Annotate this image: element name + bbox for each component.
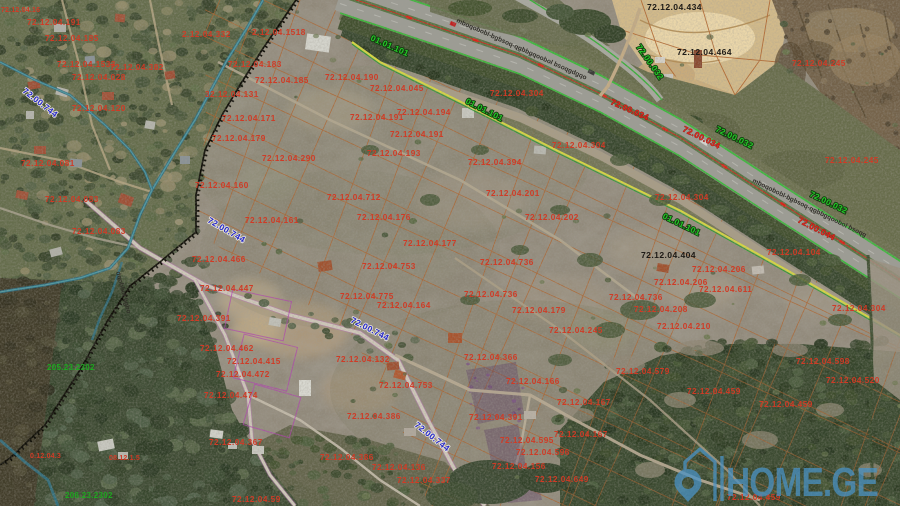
svg-text:72.12.04.156: 72.12.04.156: [492, 462, 546, 471]
svg-text:72.12.04.474: 72.12.04.474: [204, 391, 258, 400]
svg-text:72.12.04.464: 72.12.04.464: [677, 47, 732, 57]
svg-text:72.12.04.466: 72.12.04.466: [192, 255, 246, 264]
svg-text:72.12.04.194: 72.12.04.194: [397, 108, 451, 117]
svg-text:72.12.04.183: 72.12.04.183: [228, 60, 282, 69]
svg-text:72.12.04.337: 72.12.04.337: [397, 476, 451, 485]
svg-text:72.12.04.459: 72.12.04.459: [687, 387, 741, 396]
svg-text:72.12.04.404: 72.12.04.404: [641, 250, 696, 260]
svg-text:72.12.04.753: 72.12.04.753: [362, 262, 416, 271]
svg-text:72.12.04.167: 72.12.04.167: [554, 430, 608, 439]
svg-text:72.12.04.447: 72.12.04.447: [200, 284, 254, 293]
svg-text:72.12.04.712: 72.12.04.712: [327, 193, 381, 202]
svg-text:72.12.04.176: 72.12.04.176: [357, 213, 411, 222]
svg-text:72.12.04.1533: 72.12.04.1533: [57, 60, 116, 69]
svg-text:72.12.04.386: 72.12.04.386: [320, 453, 374, 462]
svg-text:72.12.04.472: 72.12.04.472: [216, 370, 270, 379]
svg-text:72.12.04.081: 72.12.04.081: [21, 159, 75, 168]
svg-text:72.12.04.167: 72.12.04.167: [557, 398, 611, 407]
svg-text:HOME.GE: HOME.GE: [726, 459, 878, 505]
svg-text:72.12.04.245: 72.12.04.245: [549, 326, 603, 335]
svg-text:72.12.04.083: 72.12.04.083: [72, 227, 126, 236]
svg-text:72.12.04.304: 72.12.04.304: [552, 141, 606, 150]
svg-text:72.12.04.104: 72.12.04.104: [767, 248, 821, 257]
svg-text:205.23.2302: 205.23.2302: [47, 363, 95, 372]
svg-text:72.12.04.171: 72.12.04.171: [222, 114, 276, 123]
svg-text:72.12.04.394: 72.12.04.394: [468, 158, 522, 167]
svg-text:72.12.04.595: 72.12.04.595: [500, 436, 554, 445]
svg-text:72.12.04.16: 72.12.04.16: [1, 7, 40, 14]
svg-text:72.12.04.201: 72.12.04.201: [486, 189, 540, 198]
svg-text:72.12.04.59: 72.12.04.59: [232, 495, 281, 504]
svg-text:72.12.04.202: 72.12.04.202: [525, 213, 579, 222]
svg-text:72.12.04.166: 72.12.04.166: [506, 377, 560, 386]
svg-text:72.12.04.753: 72.12.04.753: [379, 381, 433, 390]
svg-text:0.12.04.3: 0.12.04.3: [30, 453, 61, 460]
svg-text:72.12.04.367: 72.12.04.367: [209, 438, 263, 447]
svg-text:72.12.04.191: 72.12.04.191: [27, 18, 81, 27]
svg-text:72.12.04.191: 72.12.04.191: [390, 130, 444, 139]
svg-text:72.12.04.386: 72.12.04.386: [347, 412, 401, 421]
svg-text:72.12.04.161: 72.12.04.161: [245, 216, 299, 225]
svg-text:08.12.1.5: 08.12.1.5: [109, 455, 140, 462]
svg-text:72.12.04.462: 72.12.04.462: [200, 344, 254, 353]
svg-text:206.23.2302: 206.23.2302: [65, 491, 113, 500]
svg-text:72.12.04.160: 72.12.04.160: [195, 181, 249, 190]
svg-text:72.12.04.649: 72.12.04.649: [535, 475, 589, 484]
svg-text:72.12.04.190: 72.12.04.190: [325, 73, 379, 82]
svg-text:72.12.04.775: 72.12.04.775: [340, 292, 394, 301]
svg-text:72.12.04.208: 72.12.04.208: [634, 305, 688, 314]
svg-text:72.12.04.304: 72.12.04.304: [832, 304, 886, 313]
svg-text:72.12.04.045: 72.12.04.045: [370, 84, 424, 93]
svg-text:2.12.04.1518: 2.12.04.1518: [252, 28, 306, 37]
svg-text:72.12.04.304: 72.12.04.304: [655, 193, 709, 202]
svg-text:72.12.04.120: 72.12.04.120: [72, 104, 126, 113]
svg-text:72.12.04.164: 72.12.04.164: [377, 301, 431, 310]
svg-text:72.12.04.598: 72.12.04.598: [796, 357, 850, 366]
svg-text:72.12.04.304: 72.12.04.304: [490, 89, 544, 98]
svg-text:72.12.04.391: 72.12.04.391: [469, 413, 523, 422]
svg-text:72.12.04.415: 72.12.04.415: [227, 357, 281, 366]
svg-text:72.12.04.193: 72.12.04.193: [367, 149, 421, 158]
svg-text:72.12.04.136: 72.12.04.136: [372, 463, 426, 472]
svg-text:72.12.04.191: 72.12.04.191: [350, 113, 404, 122]
svg-text:72.12.04.520: 72.12.04.520: [826, 376, 880, 385]
svg-text:72.12.04.245: 72.12.04.245: [792, 59, 846, 68]
svg-text:72.12.04.434: 72.12.04.434: [647, 2, 702, 12]
svg-text:72.12.04.596: 72.12.04.596: [516, 448, 570, 457]
svg-text:72.12.04.210: 72.12.04.210: [657, 322, 711, 331]
svg-text:32.12.04.131: 32.12.04.131: [205, 90, 259, 99]
svg-text:72.12.04.736: 72.12.04.736: [609, 293, 663, 302]
svg-text:72.12.04.185: 72.12.04.185: [255, 76, 309, 85]
svg-text:72.12.04.179: 72.12.04.179: [212, 134, 266, 143]
svg-text:72.12.04.132: 72.12.04.132: [336, 355, 390, 364]
svg-text:2.12.04.332: 2.12.04.332: [182, 30, 231, 39]
svg-text:72.12.04.206: 72.12.04.206: [692, 265, 746, 274]
svg-text:72.12.04.459: 72.12.04.459: [759, 400, 813, 409]
svg-text:72.12.04.579: 72.12.04.579: [616, 367, 670, 376]
svg-text:72.12.04.185: 72.12.04.185: [45, 34, 99, 43]
svg-text:72.12.04.611: 72.12.04.611: [699, 285, 752, 294]
svg-text:72.12.04.177: 72.12.04.177: [403, 239, 457, 248]
svg-text:72.12.04.028: 72.12.04.028: [72, 73, 126, 82]
svg-text:72.12.04.366: 72.12.04.366: [464, 353, 518, 362]
svg-text:72.12.04.736: 72.12.04.736: [464, 290, 518, 299]
svg-text:72.12.04.179: 72.12.04.179: [512, 306, 566, 315]
svg-text:72.12.04.083: 72.12.04.083: [45, 195, 99, 204]
svg-text:72.12.04.736: 72.12.04.736: [480, 258, 534, 267]
svg-text:72.12.04.382: 72.12.04.382: [110, 63, 164, 72]
svg-text:72.12.04.245: 72.12.04.245: [825, 156, 879, 165]
svg-text:72.12.04.290: 72.12.04.290: [262, 154, 316, 163]
svg-text:72.12.04.391: 72.12.04.391: [177, 314, 231, 323]
